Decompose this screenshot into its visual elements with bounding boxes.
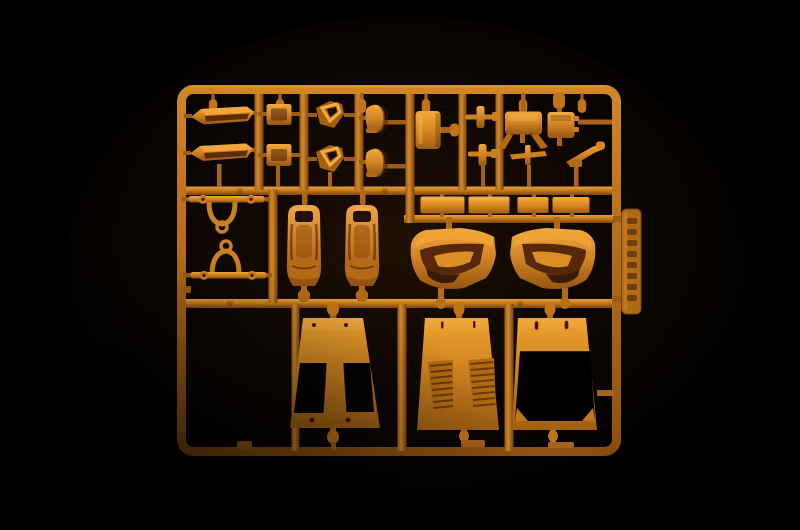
corner-shadow-overlay bbox=[0, 0, 800, 530]
photo-canvas bbox=[0, 0, 800, 530]
